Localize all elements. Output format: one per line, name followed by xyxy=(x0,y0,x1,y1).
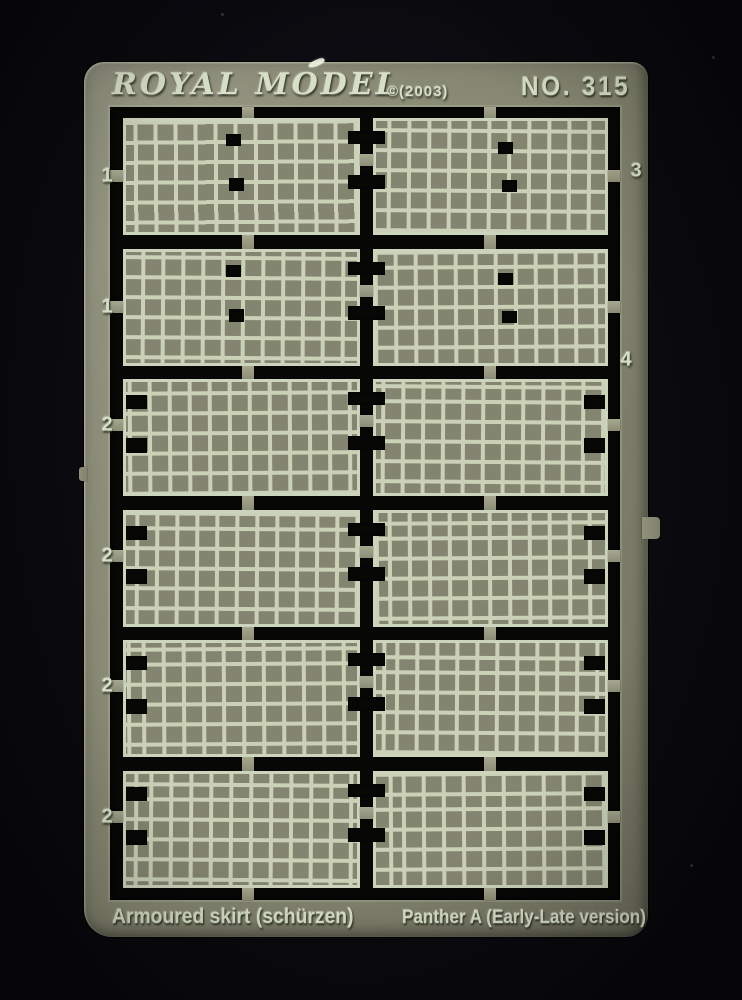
mesh-texture xyxy=(373,249,608,366)
mesh-texture xyxy=(373,379,608,496)
connection-tab xyxy=(360,285,373,297)
mesh-texture xyxy=(123,510,360,627)
cutout-crossbar xyxy=(348,175,385,189)
cutout-crossbar xyxy=(348,131,385,144)
connection-tab xyxy=(242,235,254,249)
cutout-crossbar xyxy=(348,567,385,581)
mesh-texture xyxy=(123,640,360,757)
row-label-left: 2 xyxy=(101,545,112,568)
connection-tab xyxy=(242,366,254,379)
mesh-panel xyxy=(123,249,360,366)
connection-tab xyxy=(484,888,496,900)
connection-tab xyxy=(242,888,254,900)
mesh-panel xyxy=(123,771,360,888)
mesh-texture xyxy=(123,118,360,235)
connection-tab xyxy=(484,627,496,640)
mesh-panel xyxy=(373,640,608,757)
cutout-notch xyxy=(123,830,147,845)
row-label-left: 1 xyxy=(101,296,112,319)
connection-tab xyxy=(360,807,373,819)
cutout-crossbar xyxy=(348,436,385,450)
cutout-crossbar xyxy=(348,392,385,405)
cutout-notch xyxy=(584,438,608,453)
mesh-texture xyxy=(373,118,608,235)
cutout-slot xyxy=(229,178,244,191)
row-label-right: 4 xyxy=(620,349,631,372)
connection-tab xyxy=(608,680,620,692)
cutout-notch xyxy=(584,787,608,801)
sprue-tab-right xyxy=(642,517,660,539)
mesh-panel xyxy=(123,118,360,235)
cutout-slot xyxy=(226,265,241,277)
cutout-notch xyxy=(123,526,147,540)
mesh-texture xyxy=(373,510,608,627)
row-label-left: 1 xyxy=(101,165,112,188)
row-label-left: 2 xyxy=(101,675,112,698)
cutout-notch xyxy=(123,656,147,670)
cutout-crossbar xyxy=(348,523,385,536)
mesh-texture xyxy=(373,640,608,757)
cutout-notch xyxy=(584,569,608,584)
mesh-texture xyxy=(373,771,608,888)
connection-tab xyxy=(360,415,373,427)
dust-speck xyxy=(221,13,224,16)
cutout-notch xyxy=(123,787,147,801)
row-label-right: 3 xyxy=(630,160,641,183)
cutout-notch xyxy=(123,699,147,714)
connection-tab xyxy=(484,107,496,118)
connection-tab xyxy=(608,419,620,431)
mesh-panel xyxy=(373,510,608,627)
cutout-slot xyxy=(229,309,244,322)
mesh-panel xyxy=(373,249,608,366)
mesh-texture xyxy=(123,771,360,888)
connection-tab xyxy=(608,550,620,562)
cutout-crossbar xyxy=(348,697,385,711)
mesh-panel xyxy=(123,510,360,627)
cutout-slot xyxy=(498,273,513,285)
connection-tab xyxy=(242,757,254,771)
cutout-slot xyxy=(502,311,517,323)
connection-tab xyxy=(484,496,496,510)
photo-background: ROYAL MODEL ©(2003) NO. 315 11222234 Arm… xyxy=(0,0,742,1000)
etched-fret-sheet: ROYAL MODEL ©(2003) NO. 315 11222234 Arm… xyxy=(84,62,648,937)
cutout-crossbar xyxy=(348,828,385,842)
connection-tab xyxy=(242,107,254,118)
connection-tab xyxy=(608,170,620,182)
connection-tab xyxy=(360,676,373,688)
cutout-notch xyxy=(123,395,147,409)
mesh-panel xyxy=(123,379,360,496)
connection-tab xyxy=(608,811,620,823)
cutout-slot xyxy=(498,142,513,154)
mesh-texture xyxy=(123,379,360,496)
cutout-crossbar xyxy=(348,262,385,275)
connection-tab xyxy=(484,235,496,249)
mesh-panel xyxy=(373,771,608,888)
cutout-notch xyxy=(123,569,147,584)
connection-tab xyxy=(242,496,254,510)
connection-tab xyxy=(608,301,620,313)
cutout-notch xyxy=(123,438,147,453)
cutout-notch xyxy=(584,526,608,540)
footer-right-label: Panther A (Early-Late version) xyxy=(402,907,646,929)
dust-speck xyxy=(690,864,693,867)
connection-tab xyxy=(242,627,254,640)
connection-tab xyxy=(360,546,373,558)
panel-grid: 11222234 xyxy=(84,62,648,937)
row-label-left: 2 xyxy=(101,806,112,829)
dust-speck xyxy=(712,56,715,59)
cutout-slot xyxy=(226,134,241,146)
mesh-panel xyxy=(123,640,360,757)
sprue-tab-left xyxy=(79,467,87,481)
mesh-texture xyxy=(123,249,360,366)
connection-tab xyxy=(360,154,373,166)
connection-tab xyxy=(484,366,496,379)
footer-left-label: Armoured skirt (schürzen) xyxy=(112,905,354,929)
connection-tab xyxy=(484,757,496,771)
cutout-notch xyxy=(584,395,608,409)
cutout-crossbar xyxy=(348,306,385,320)
cutout-notch xyxy=(584,830,608,845)
cutout-crossbar xyxy=(348,784,385,797)
cutout-notch xyxy=(584,699,608,714)
mesh-panel xyxy=(373,379,608,496)
cutout-notch xyxy=(584,656,608,670)
row-label-left: 2 xyxy=(101,414,112,437)
mesh-panel xyxy=(373,118,608,235)
cutout-slot xyxy=(502,180,517,192)
cutout-crossbar xyxy=(348,653,385,666)
